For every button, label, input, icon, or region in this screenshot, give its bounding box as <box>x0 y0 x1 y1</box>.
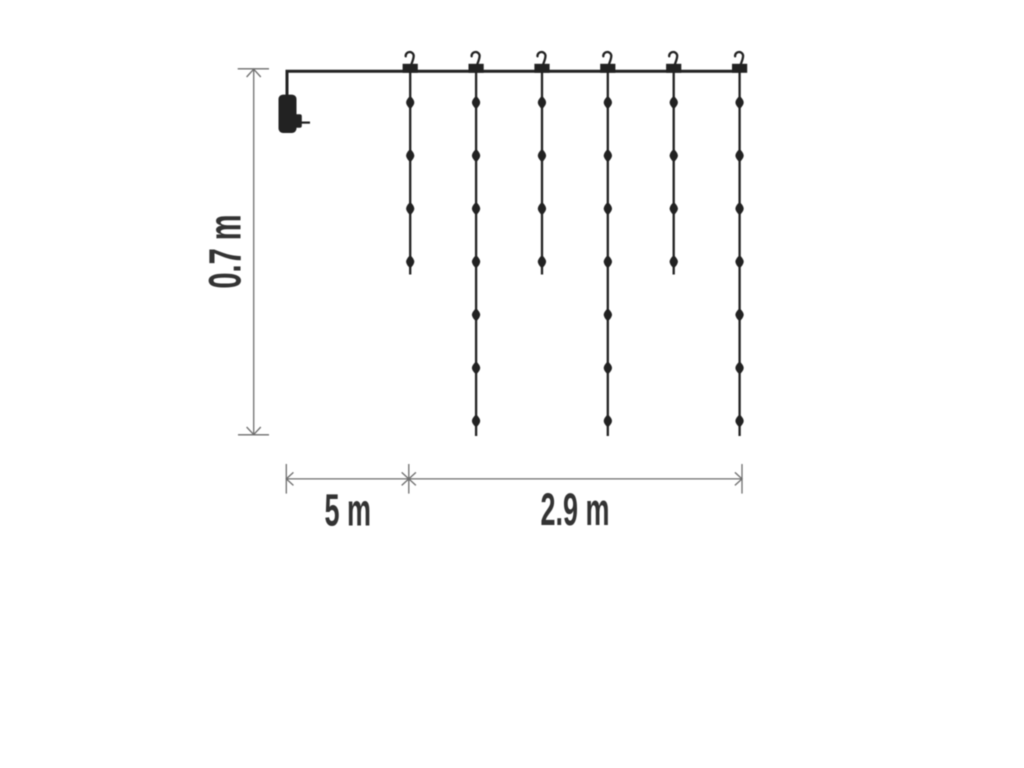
svg-text:0.7 m: 0.7 m <box>201 214 251 288</box>
svg-text:5 m: 5 m <box>325 484 372 535</box>
svg-text:2.9 m: 2.9 m <box>540 484 609 535</box>
